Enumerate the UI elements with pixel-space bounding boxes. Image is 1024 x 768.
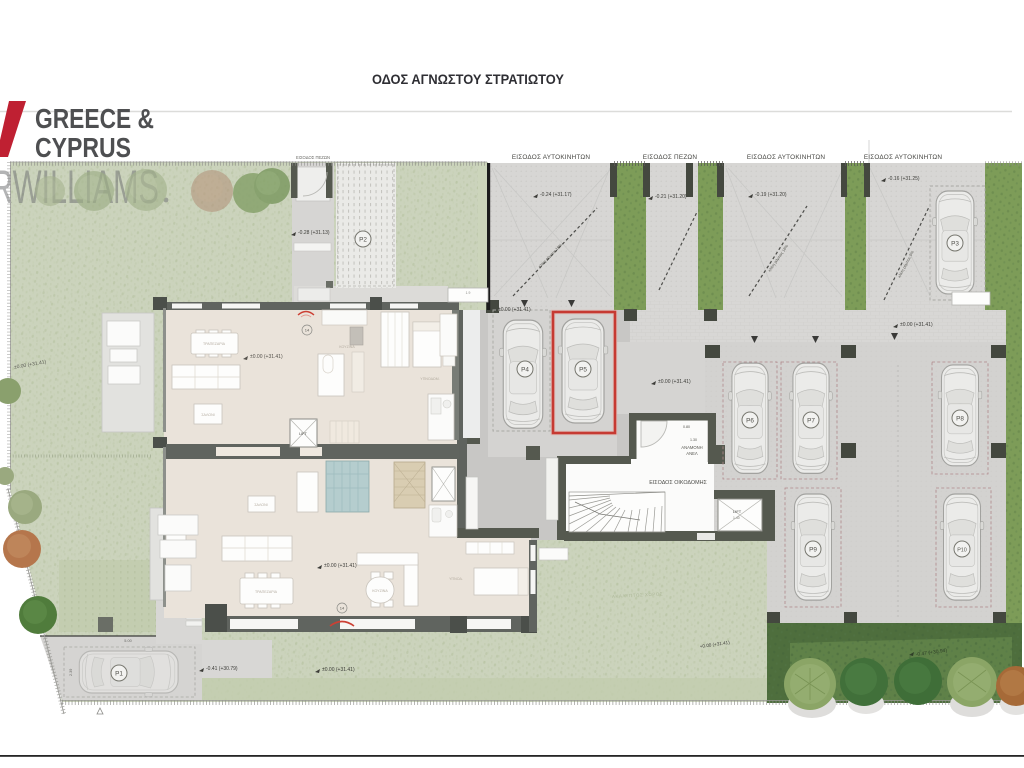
svg-text:ΕΙΣΟΔΟΣ ΑΥΤΟΚΙΝΗΤΩΝ: ΕΙΣΟΔΟΣ ΑΥΤΟΚΙΝΗΤΩΝ <box>747 154 826 161</box>
svg-text:GREECE &: GREECE & <box>35 103 154 134</box>
svg-text:LIFT: LIFT <box>733 509 742 514</box>
svg-text:ΥΠΝΟΔΩΜ.: ΥΠΝΟΔΩΜ. <box>420 377 439 381</box>
svg-text:P5: P5 <box>579 367 587 374</box>
svg-text:ΤΡΑΠΕΖΑΡΙΑ: ΤΡΑΠΕΖΑΡΙΑ <box>255 590 278 594</box>
svg-text:CYPRUS: CYPRUS <box>35 132 131 163</box>
svg-text:ΑΝΕΛ: ΑΝΕΛ <box>686 451 698 456</box>
svg-text:±0.00 (+31.41): ±0.00 (+31.41) <box>322 667 355 673</box>
svg-text:P8: P8 <box>956 416 964 423</box>
svg-text:14: 14 <box>340 606 345 611</box>
svg-text:0.80: 0.80 <box>683 425 690 429</box>
svg-text:-0.19 (+31.20): -0.19 (+31.20) <box>755 192 787 198</box>
svg-text:-0.28 (+31.13): -0.28 (+31.13) <box>298 230 330 236</box>
svg-text:±0.00 (+31.41): ±0.00 (+31.41) <box>250 354 283 360</box>
svg-text:ΚΟΥΖΙΝΑ: ΚΟΥΖΙΝΑ <box>372 589 388 593</box>
svg-text:P10: P10 <box>957 548 967 554</box>
svg-text:14: 14 <box>305 328 310 333</box>
svg-text:ΟΔΟΣ ΑΓΝΩΣΤΟΥ ΣΤΡΑΤΙΩΤΟΥ: ΟΔΟΣ ΑΓΝΩΣΤΟΥ ΣΤΡΑΤΙΩΤΟΥ <box>372 71 565 87</box>
svg-text:ΑΝΑΜΟΝΗ: ΑΝΑΜΟΝΗ <box>681 445 702 450</box>
svg-text:P2: P2 <box>359 237 367 244</box>
svg-text:5.00: 5.00 <box>124 639 131 643</box>
svg-text:P3: P3 <box>951 241 959 248</box>
svg-text:ΚΟΥΖΙΝΑ: ΚΟΥΖΙΝΑ <box>339 345 355 349</box>
svg-text:-0.21 (+31.20): -0.21 (+31.20) <box>655 194 687 200</box>
svg-text:P6: P6 <box>746 418 754 425</box>
svg-text:ΣΑΛΟΝΙ: ΣΑΛΟΝΙ <box>201 413 214 417</box>
svg-text:P9: P9 <box>809 547 817 554</box>
svg-text:P1: P1 <box>115 671 123 678</box>
svg-text:±0.00 (+31.41): ±0.00 (+31.41) <box>498 307 531 313</box>
svg-text:1.40: 1.40 <box>733 516 740 520</box>
svg-text:ΤΡΑΠΕΖΑΡΙΑ: ΤΡΑΠΕΖΑΡΙΑ <box>203 342 226 346</box>
svg-text:ΥΠΝΟΔ.: ΥΠΝΟΔ. <box>449 577 463 581</box>
svg-text:±0.00 (+31.41): ±0.00 (+31.41) <box>658 379 691 385</box>
svg-text:-0.41 (+30.79): -0.41 (+30.79) <box>206 666 238 672</box>
svg-text:2.39: 2.39 <box>69 669 73 676</box>
svg-text:P7: P7 <box>807 418 815 425</box>
svg-text:P4: P4 <box>521 367 529 374</box>
svg-text:ΕΙΣΟΔΟΣ ΠΕΖΩΝ: ΕΙΣΟΔΟΣ ΠΕΖΩΝ <box>643 154 698 161</box>
svg-text:ΕΙΣΟΔΟΣ ΟΙΚΟΔΟΜΗΣ: ΕΙΣΟΔΟΣ ΟΙΚΟΔΟΜΗΣ <box>649 480 707 486</box>
svg-text:1.30: 1.30 <box>690 438 697 442</box>
svg-text:±0.00 (+31.41): ±0.00 (+31.41) <box>900 322 933 328</box>
svg-text:±0.00 (+31.41): ±0.00 (+31.41) <box>324 563 357 569</box>
svg-text:ΣΑΛΟΝΙ: ΣΑΛΟΝΙ <box>254 503 267 507</box>
svg-text:-0.16 (+31.25): -0.16 (+31.25) <box>888 176 920 182</box>
svg-text:1.9: 1.9 <box>466 291 471 295</box>
svg-text:LIFT: LIFT <box>299 432 307 436</box>
svg-text:ΕΙΣΟΔΟΣ ΠΕΖΩΝ: ΕΙΣΟΔΟΣ ΠΕΖΩΝ <box>296 155 330 160</box>
svg-text:-0.24 (+31.17): -0.24 (+31.17) <box>540 192 572 198</box>
svg-text:ΕΙΣΟΔΟΣ ΑΥΤΟΚΙΝΗΤΩΝ: ΕΙΣΟΔΟΣ ΑΥΤΟΚΙΝΗΤΩΝ <box>512 154 591 161</box>
svg-text:ΕΙΣΟΔΟΣ ΑΥΤΟΚΙΝΗΤΩΝ: ΕΙΣΟΔΟΣ ΑΥΤΟΚΙΝΗΤΩΝ <box>864 154 943 161</box>
